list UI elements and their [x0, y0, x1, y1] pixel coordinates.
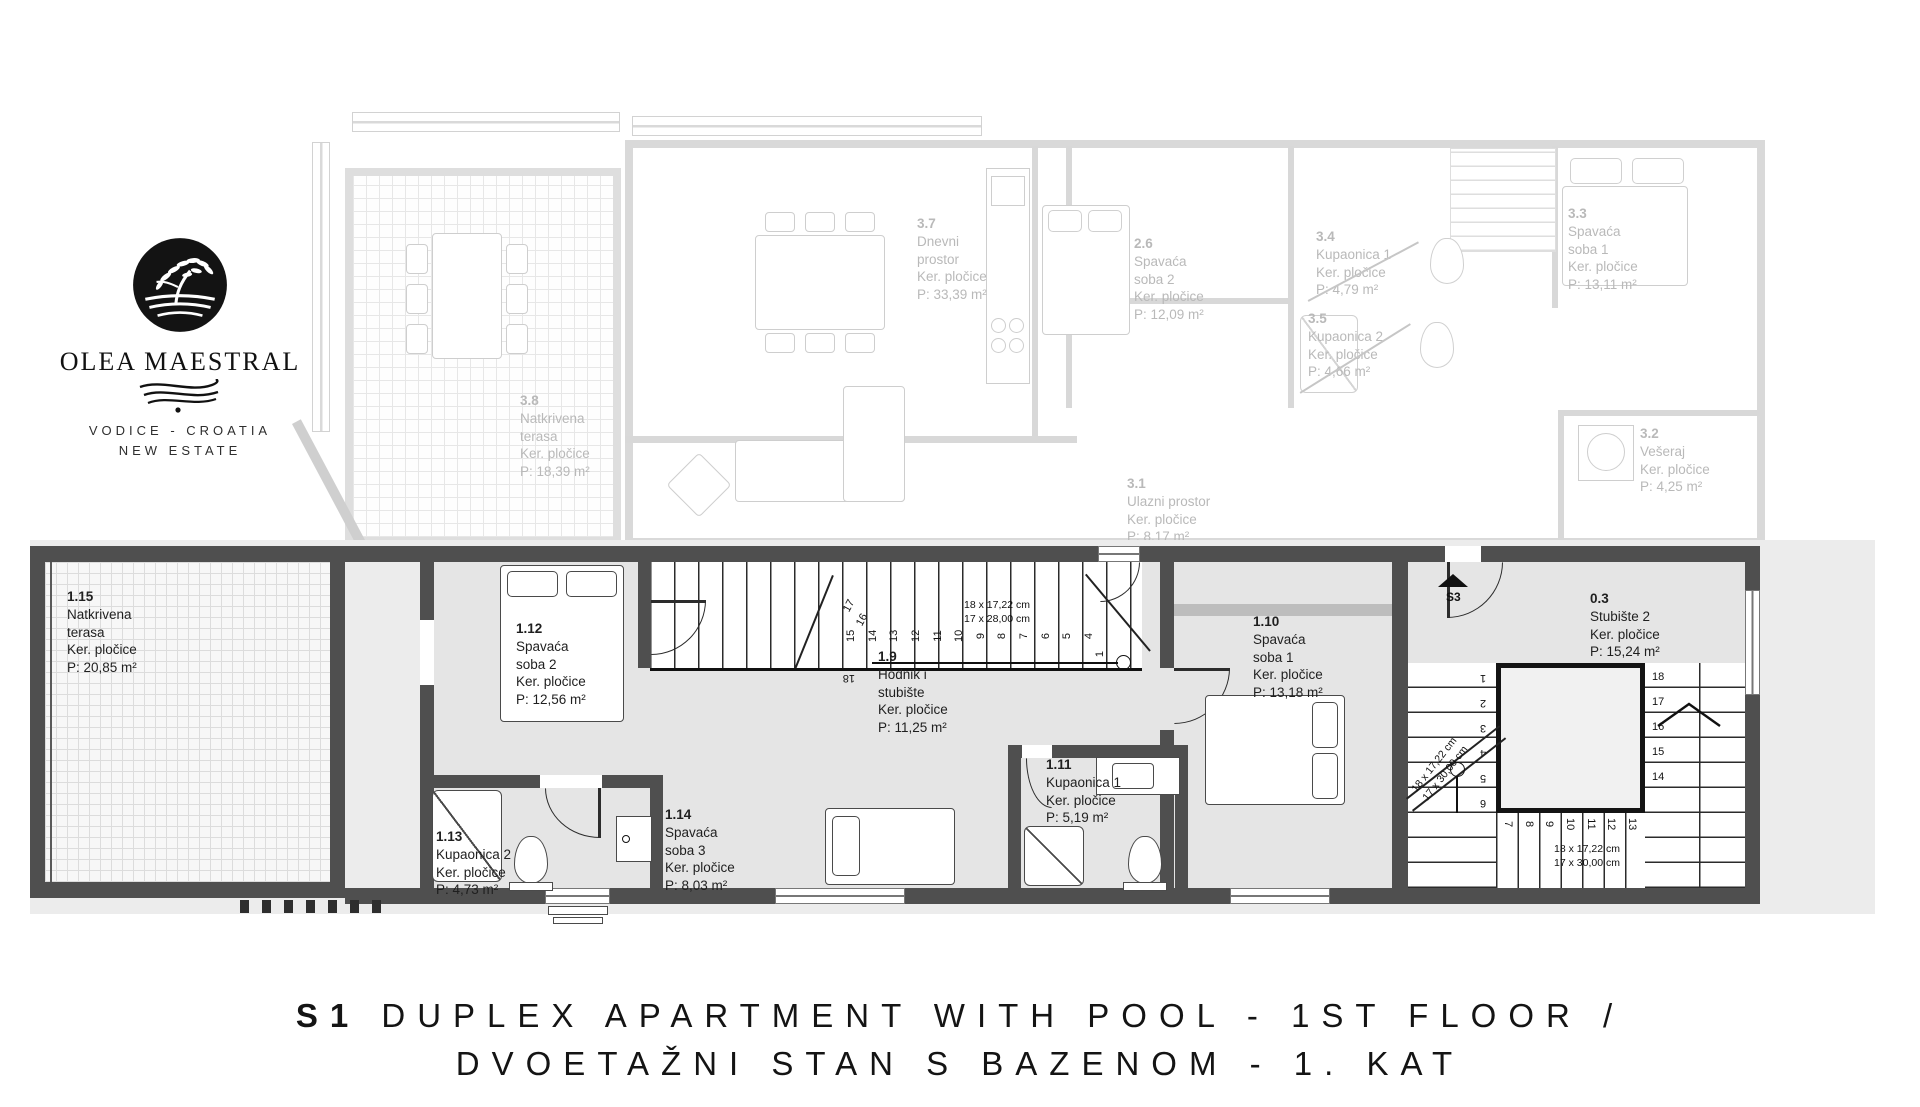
door-opening — [1098, 546, 1140, 562]
stair-step-number: 9 — [975, 630, 987, 642]
ghost-window — [632, 116, 982, 136]
room-label-1-12: 1.12 Spavaća soba 2 Ker. pločice P: 12,5… — [516, 620, 601, 709]
terrace-edge-ticks — [240, 900, 392, 913]
stair-direction-arrow — [1656, 702, 1722, 728]
stair-step-number: 12 — [910, 630, 922, 642]
stair-step-number: 8 — [1523, 818, 1535, 830]
room-label-3-1: 3.1 Ulazni prostor Ker. pločice P: 8,17 … — [1127, 475, 1247, 546]
room-label-3-2: 3.2 Vešeraj Ker. pločice P: 4,25 m² — [1640, 425, 1730, 496]
ghost-wall — [1288, 146, 1294, 408]
ghost-pillow — [1632, 158, 1684, 184]
stair-step-number: 15 — [1652, 740, 1664, 765]
door-opening — [1445, 546, 1481, 562]
ghost-chair — [506, 284, 528, 314]
ghost-dining-table — [755, 235, 885, 330]
ghost-burner — [1009, 318, 1024, 333]
wall-line — [50, 562, 52, 882]
stair-step-number: 11 — [932, 630, 944, 642]
entrance-steps — [548, 906, 608, 915]
ghost-wall — [1560, 410, 1760, 416]
stair-step-number: 11 — [1585, 818, 1597, 830]
stair-step-number: 10 — [953, 630, 965, 642]
cabinet-handle — [622, 835, 630, 843]
stair-step-number: 6 — [1040, 630, 1052, 642]
pillow — [1312, 702, 1338, 748]
sheet-title-line2: DVOETAŽNI STAN S BAZENOM - 1. KAT — [0, 1040, 1920, 1088]
wall — [1008, 745, 1021, 888]
stair-step-number: 8 — [996, 630, 1008, 642]
window — [1745, 590, 1760, 695]
ghost-chair — [805, 333, 835, 353]
sheet-title-line1: S1 DUPLEX APARTMENT WITH POOL - 1ST FLOO… — [0, 992, 1920, 1040]
stair-step-number: 18 — [843, 672, 855, 684]
wall — [30, 546, 45, 898]
ghost-chair — [765, 333, 795, 353]
stair-step-number: 5 — [1061, 630, 1073, 642]
door-leaf — [651, 600, 706, 603]
stair-step-numbers: 78910111213 — [1502, 818, 1638, 830]
room-label-1-11: 1.11 Kupaonica 1 Ker. pločice P: 5,19 m² — [1046, 756, 1146, 827]
stair-step-number: 1 — [1094, 648, 1106, 660]
ghost-chair — [845, 212, 875, 232]
ghost-table — [432, 233, 502, 359]
ghost-washing-machine-drum — [1587, 433, 1625, 471]
brand-location: VODICE - CROATIA — [56, 423, 304, 438]
ghost-pillow — [1048, 210, 1082, 232]
stair-step-number: 12 — [1605, 818, 1617, 830]
ghost-chair — [765, 212, 795, 232]
ghost-wall — [1032, 146, 1038, 438]
room-label-0-3: 0.3 Stubište 2 Ker. pločice P: 15,24 m² — [1590, 590, 1685, 661]
room-label-2-6: 2.6 Spavaća soba 2 Ker. pločice P: 12,09… — [1134, 235, 1214, 324]
ghost-wall — [1558, 410, 1564, 546]
ghost-window — [312, 142, 330, 432]
stair-step-number: 4 — [1083, 630, 1095, 642]
stair-step-number: 15 — [845, 630, 857, 642]
stair-step-number: 1 — [1480, 665, 1486, 690]
wall — [30, 546, 1760, 562]
ghost-chair — [406, 324, 428, 354]
stair-walk-line — [1456, 777, 1458, 813]
unit-code: S1 — [296, 997, 360, 1034]
ghost-burner — [991, 318, 1006, 333]
door-opening — [420, 620, 434, 685]
stair-step-numbers: 151413121110987654 — [845, 630, 1095, 642]
ghost-burner — [991, 338, 1006, 353]
stair-step-number: 13 — [1626, 818, 1638, 830]
door-leaf — [1174, 668, 1230, 671]
ghost-toilet — [1430, 238, 1464, 284]
ghost-chair — [406, 284, 428, 314]
stair-step-number: 13 — [888, 630, 900, 642]
direction-triangle-icon — [1438, 574, 1468, 587]
wall — [330, 546, 345, 898]
stair-marker-s3: S3 — [1446, 590, 1461, 604]
ghost-chair — [406, 244, 428, 274]
ghost-chair — [805, 212, 835, 232]
stair-step-number: 14 — [1652, 765, 1664, 790]
wall — [1392, 560, 1408, 890]
stair-step-number: 14 — [867, 630, 879, 642]
door-leaf — [598, 788, 601, 838]
pillow — [832, 816, 860, 876]
shower — [1024, 826, 1084, 886]
brand-logo: OLEA MAESTRAL VODICE - CROATIA NEW ESTAT… — [56, 234, 304, 458]
stair-step-number: 18 — [1652, 665, 1664, 690]
sheet-title: S1 DUPLEX APARTMENT WITH POOL - 1ST FLOO… — [0, 992, 1920, 1088]
window — [1230, 888, 1330, 904]
wall — [30, 882, 345, 898]
stair-step-number: 6 — [1480, 790, 1486, 815]
wave-icon — [132, 379, 228, 413]
ghost-window — [352, 112, 620, 132]
ghost-chair — [506, 244, 528, 274]
ghost-toilet — [1420, 322, 1454, 368]
stair-dimensions: 18 x 17,22 cm 17 x 30,00 cm — [1522, 842, 1652, 870]
pillow — [566, 571, 617, 597]
stair-step-number: 7 — [1018, 630, 1030, 642]
room-label-1-15: 1.15 Natkrivena terasa Ker. pločice P: 2… — [67, 588, 162, 677]
stair-step-number: 10 — [1564, 818, 1576, 830]
ghost-burner — [1009, 338, 1024, 353]
brand-name: OLEA MAESTRAL — [56, 347, 304, 377]
pillow — [507, 571, 558, 597]
room-label-3-7: 3.7 Dnevni prostor Ker. pločice P: 33,39… — [917, 215, 987, 304]
ghost-sofa — [843, 386, 905, 502]
ghost-staircase — [1450, 148, 1556, 252]
toilet-tank — [1123, 882, 1167, 891]
room-label-3-8: 3.8 Natkrivena terasa Ker. pločice P: 18… — [520, 392, 610, 481]
stair-void — [1496, 663, 1645, 813]
window — [775, 888, 905, 904]
wall — [638, 546, 651, 668]
room-label-1-14: 1.14 Spavaća soba 3 Ker. pločice P: 8,03… — [665, 806, 750, 895]
entrance-door — [545, 888, 610, 904]
stair-step-number: 2 — [1480, 690, 1486, 715]
wall — [1160, 546, 1174, 668]
entrance-steps — [553, 917, 603, 924]
brand-tagline: NEW ESTATE — [56, 443, 304, 458]
room-label-1-10: 1.10 Spavaća soba 1 Ker. pločice P: 13,1… — [1253, 613, 1338, 702]
stair-dimensions: 18 x 17,22 cm 17 x 28,00 cm — [930, 598, 1064, 626]
ghost-chair — [845, 333, 875, 353]
toilet — [1128, 836, 1162, 884]
floor-plan-sheet: OLEA MAESTRAL VODICE - CROATIA NEW ESTAT… — [0, 0, 1920, 1107]
stair-step-number: 9 — [1543, 818, 1555, 830]
room-label-1-13: 1.13 Kupaonica 2 Ker. pločice P: 4,73 m² — [436, 828, 536, 899]
room-label-3-5: 3.5 Kupaonica 2 Ker. pločice P: 4,66 m² — [1308, 310, 1408, 381]
stair-step-number: 7 — [1502, 818, 1514, 830]
room-label-3-3: 3.3 Spavaća soba 1 Ker. pločice P: 13,11… — [1568, 205, 1648, 294]
wall — [420, 775, 652, 788]
pillow — [1312, 753, 1338, 799]
door-opening — [540, 775, 602, 788]
room-label-1-9: 1.9 Hodnik i stubište Ker. pločice P: 11… — [878, 648, 970, 737]
ghost-pillow — [1088, 210, 1122, 232]
ghost-chair — [506, 324, 528, 354]
ghost-pillow — [1570, 158, 1622, 184]
stair-start-circle — [1116, 655, 1131, 670]
olive-tree-logo-icon — [129, 234, 231, 336]
stair-step-number: 5 — [1480, 765, 1486, 790]
ghost-sink — [991, 176, 1025, 206]
